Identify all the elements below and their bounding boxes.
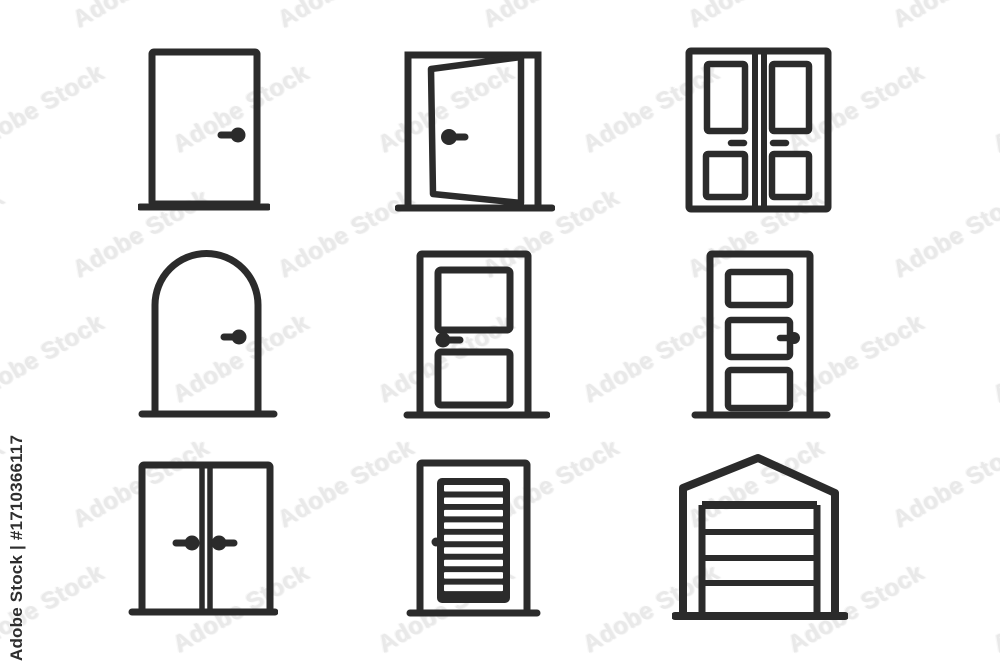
garage-door-icon	[672, 452, 848, 620]
door-icon-grid	[0, 0, 1000, 667]
arched-door-icon	[138, 248, 282, 420]
louvered-door-icon	[405, 458, 542, 618]
open-door-icon-box	[395, 42, 555, 212]
open-door-icon	[395, 42, 555, 212]
closed-door-icon	[138, 48, 270, 212]
watermark-id-label: Adobe Stock | #1710366117	[7, 435, 27, 661]
double-door-icon-box	[128, 460, 278, 620]
two-panel-door-icon	[403, 250, 550, 420]
two-panel-door-icon-box	[403, 250, 550, 420]
louvered-door-icon-box	[405, 458, 542, 618]
garage-door-icon-box	[672, 452, 848, 620]
double-door-icon	[128, 460, 278, 620]
closed-door-icon-box	[138, 48, 270, 212]
double-door-panels-icon-box	[685, 47, 832, 213]
stock-image-canvas: Adobe StockAdobe StockAdobe StockAdobe S…	[0, 0, 1000, 667]
arched-door-icon-box	[138, 248, 282, 420]
three-panel-door-icon-box	[690, 250, 832, 420]
three-panel-door-icon	[690, 250, 832, 420]
double-door-panels-icon	[685, 47, 832, 213]
